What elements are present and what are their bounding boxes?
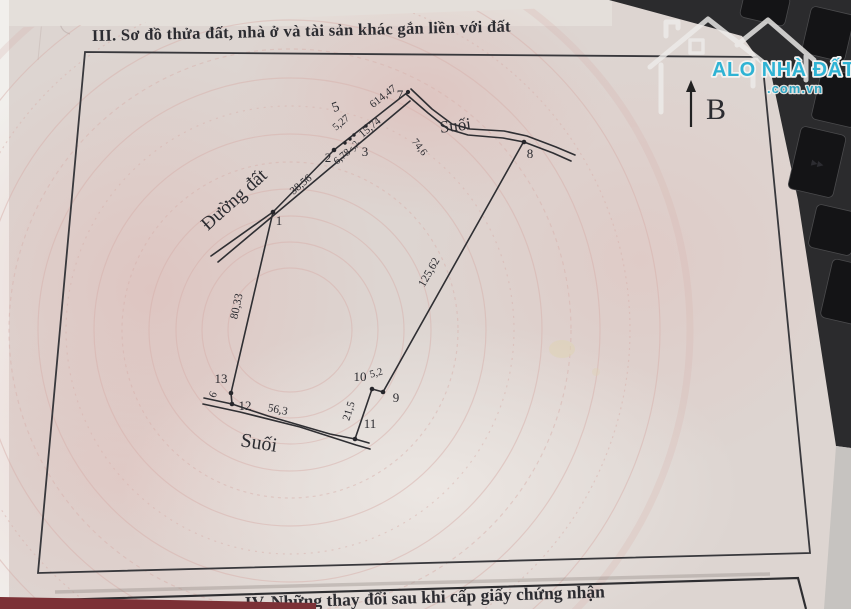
vertex-label: 12 [239,398,252,413]
vertex-dot [343,141,346,144]
vertex-label: 13 [215,371,228,386]
certificate-photo: III. Sơ đồ thửa đất, nhà ở và tài sản kh… [0,0,851,609]
paper-stain [592,368,600,376]
vertex-dot [229,391,234,396]
certificate-canvas: III. Sơ đồ thửa đất, nhà ở và tài sản kh… [0,0,851,609]
watermark-brand: ALO NHÀ ĐẤT [712,58,851,81]
vertex-dot [353,437,358,442]
vertex-label: 11 [364,416,377,431]
vertex-dot [381,390,386,395]
vertex-label: 2 [325,150,332,165]
vertex-label: 1 [276,213,283,228]
vertex-dot [271,210,276,215]
vertex-dot [352,133,355,136]
vertex-dot [370,387,375,392]
vertex-label: 3 [362,144,369,159]
stream-label-top: Suối [439,114,473,137]
vertex-dot [522,140,527,145]
north-label: B [706,93,726,126]
vertex-dot [230,402,235,407]
vertex-dot [332,148,337,153]
guilloche-pattern [0,0,851,609]
vertex-label: 7 [397,87,404,102]
paper-stain [549,340,575,358]
vertex-label: 10 [354,369,367,384]
watermark-domain: .com.vn [767,81,823,96]
vertex-dot [406,90,410,94]
vertex-label: 9 [393,390,400,405]
vertex-label: 8 [527,146,534,161]
